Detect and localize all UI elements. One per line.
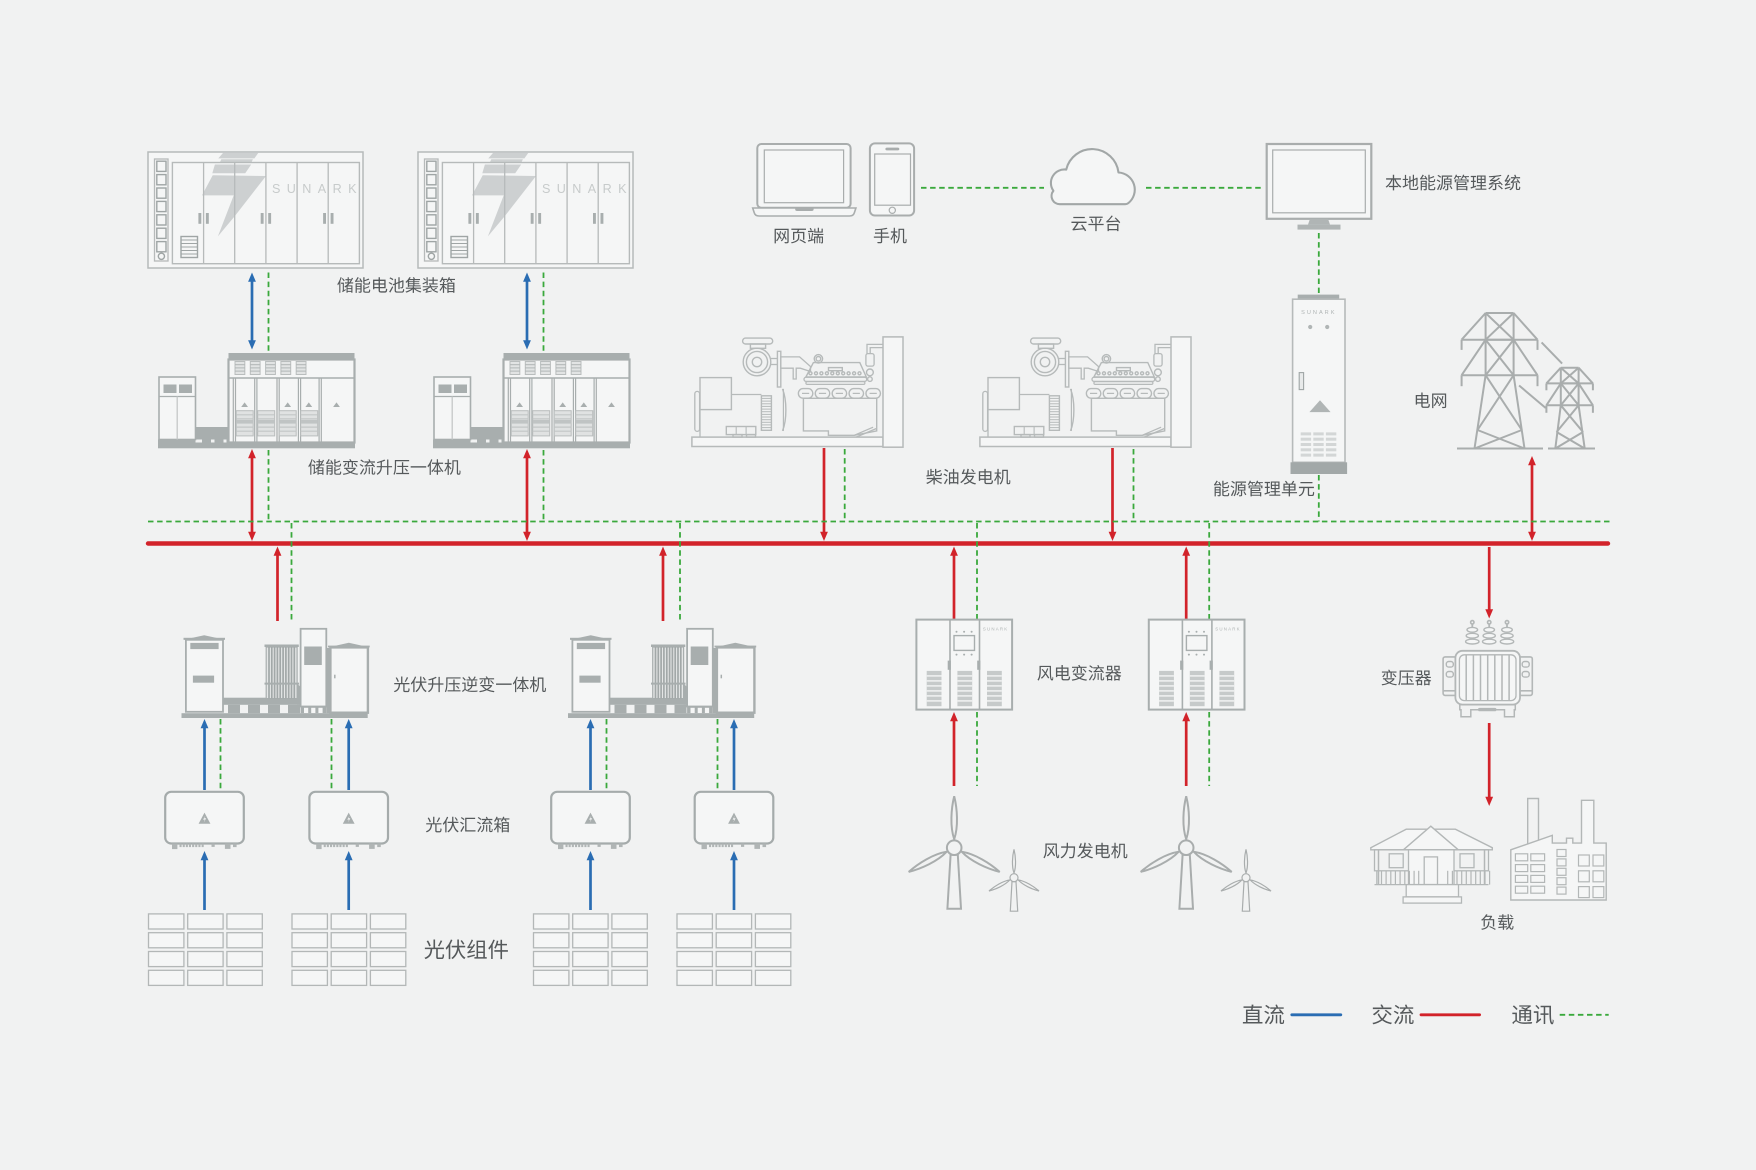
svg-text:SUNARK: SUNARK [272,182,363,196]
svg-text:SUNARK: SUNARK [983,626,1009,631]
svg-text:SUNARK: SUNARK [542,182,633,196]
svg-text:SUNARK: SUNARK [1301,310,1336,316]
svg-text:SUNARK: SUNARK [1215,626,1241,631]
